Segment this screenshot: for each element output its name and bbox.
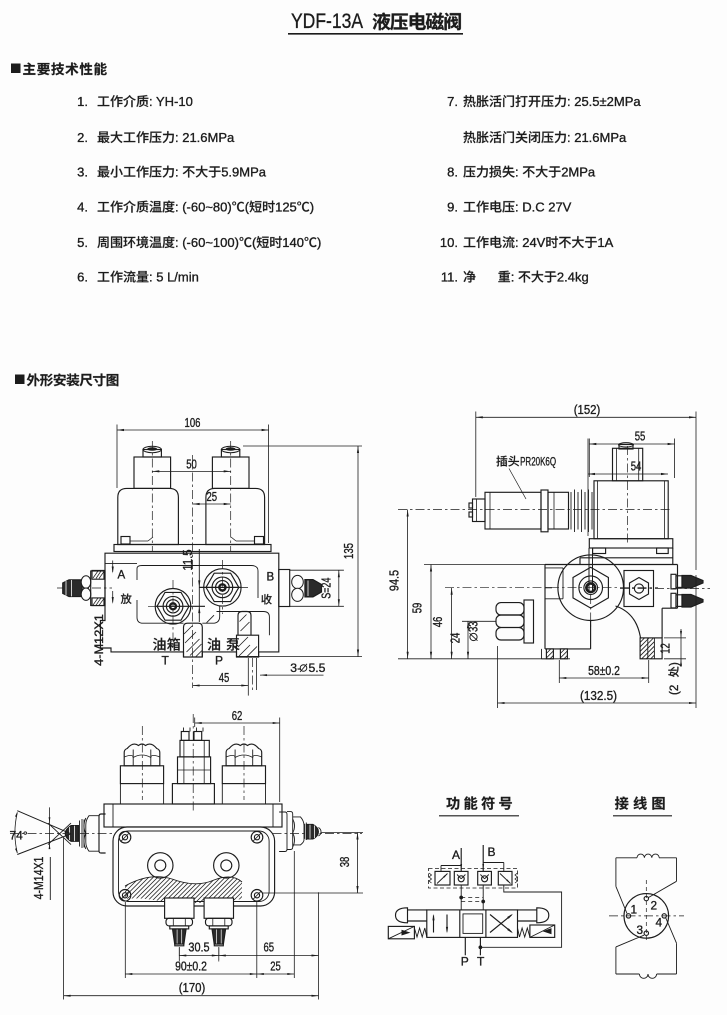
svg-text:90±0.2: 90±0.2 bbox=[175, 960, 207, 974]
svg-text:50: 50 bbox=[186, 458, 197, 472]
svg-text:38: 38 bbox=[338, 857, 352, 868]
svg-text:3: 3 bbox=[637, 923, 644, 937]
svg-text:65: 65 bbox=[264, 941, 275, 955]
svg-text:(: ( bbox=[245, 200, 250, 215]
svg-text:2.4kg: 2.4kg bbox=[557, 270, 589, 285]
svg-text:1A: 1A bbox=[597, 235, 613, 250]
svg-text:4: 4 bbox=[656, 916, 663, 930]
svg-text:(2: (2 bbox=[669, 685, 681, 695]
svg-text:(152): (152) bbox=[574, 403, 601, 417]
svg-text:58±0.2: 58±0.2 bbox=[588, 664, 620, 678]
svg-text:55: 55 bbox=[635, 430, 646, 444]
svg-text:46: 46 bbox=[431, 617, 445, 628]
svg-text:: 21.6MPa: : 21.6MPa bbox=[567, 130, 627, 145]
svg-text:: D.C 27V: : D.C 27V bbox=[515, 200, 572, 215]
svg-text:4.: 4. bbox=[77, 200, 88, 215]
svg-text:54: 54 bbox=[631, 460, 642, 474]
svg-text:24: 24 bbox=[449, 633, 463, 644]
svg-text:1.: 1. bbox=[77, 94, 88, 109]
svg-text:33: 33 bbox=[467, 621, 481, 632]
svg-text::: : bbox=[515, 165, 519, 180]
svg-text:PR20K6Q: PR20K6Q bbox=[520, 455, 556, 469]
svg-text:): ) bbox=[669, 662, 681, 666]
svg-text:2.: 2. bbox=[77, 130, 88, 145]
svg-text:74°: 74° bbox=[10, 829, 28, 843]
svg-text:7.: 7. bbox=[447, 94, 458, 109]
svg-text:140: 140 bbox=[282, 235, 304, 250]
svg-text:8.: 8. bbox=[447, 165, 458, 180]
svg-text:T: T bbox=[477, 955, 485, 969]
svg-text:6.: 6. bbox=[77, 270, 88, 285]
svg-text:5.9MPa: 5.9MPa bbox=[221, 165, 267, 180]
svg-text:125: 125 bbox=[275, 200, 297, 215]
svg-text:T: T bbox=[162, 654, 170, 668]
svg-text:10.: 10. bbox=[440, 235, 458, 250]
svg-text:30.5: 30.5 bbox=[188, 941, 209, 955]
svg-text:5.: 5. bbox=[77, 235, 88, 250]
svg-text:B: B bbox=[488, 845, 496, 859]
svg-text:25: 25 bbox=[270, 960, 281, 974]
svg-text:11.5: 11.5 bbox=[181, 549, 195, 570]
svg-text:1: 1 bbox=[631, 903, 638, 917]
svg-text:: 5 L/min: : 5 L/min bbox=[149, 270, 199, 285]
svg-text::: : bbox=[511, 270, 515, 285]
svg-text:9.: 9. bbox=[447, 200, 458, 215]
svg-text:45: 45 bbox=[219, 671, 230, 685]
svg-text:4-M14X1: 4-M14X1 bbox=[32, 857, 46, 900]
svg-text:4-M12X1: 4-M12X1 bbox=[92, 614, 106, 666]
svg-text:135: 135 bbox=[342, 543, 356, 559]
svg-text:P: P bbox=[461, 955, 469, 969]
svg-text:: 21.6MPa: : 21.6MPa bbox=[175, 130, 235, 145]
svg-text:): ) bbox=[317, 235, 321, 250]
svg-text:25: 25 bbox=[207, 490, 218, 504]
svg-text:3.: 3. bbox=[77, 165, 88, 180]
svg-text::: : bbox=[175, 165, 179, 180]
svg-text:11.: 11. bbox=[441, 270, 458, 285]
svg-text:(170): (170) bbox=[179, 981, 206, 995]
svg-text:): ) bbox=[310, 200, 314, 215]
svg-text:106: 106 bbox=[185, 416, 201, 430]
svg-text:S=24: S=24 bbox=[320, 578, 334, 599]
svg-text:12: 12 bbox=[659, 643, 673, 654]
svg-text:B: B bbox=[267, 572, 275, 584]
svg-text:: YH-10: : YH-10 bbox=[149, 94, 193, 109]
svg-text:94.5: 94.5 bbox=[388, 570, 402, 591]
svg-text:62: 62 bbox=[232, 709, 243, 723]
svg-text:YDF-13A: YDF-13A bbox=[291, 9, 364, 33]
svg-text:P: P bbox=[215, 654, 223, 668]
svg-text:: (-60~100): : (-60~100) bbox=[175, 235, 239, 250]
svg-text:: (-60~80): : (-60~80) bbox=[175, 200, 232, 215]
svg-text:(132.5): (132.5) bbox=[580, 689, 617, 703]
svg-text:5.5: 5.5 bbox=[309, 661, 326, 675]
svg-text:: 24V: : 24V bbox=[515, 235, 546, 250]
svg-text:2MPa: 2MPa bbox=[561, 165, 596, 180]
svg-text:59: 59 bbox=[411, 603, 425, 614]
svg-text:A: A bbox=[452, 848, 460, 862]
svg-text:A: A bbox=[118, 570, 126, 582]
svg-text:(: ( bbox=[252, 235, 257, 250]
svg-text:: 25.5±2MPa: : 25.5±2MPa bbox=[567, 94, 641, 109]
svg-text:3-: 3- bbox=[290, 661, 301, 675]
svg-text:2: 2 bbox=[651, 899, 658, 913]
